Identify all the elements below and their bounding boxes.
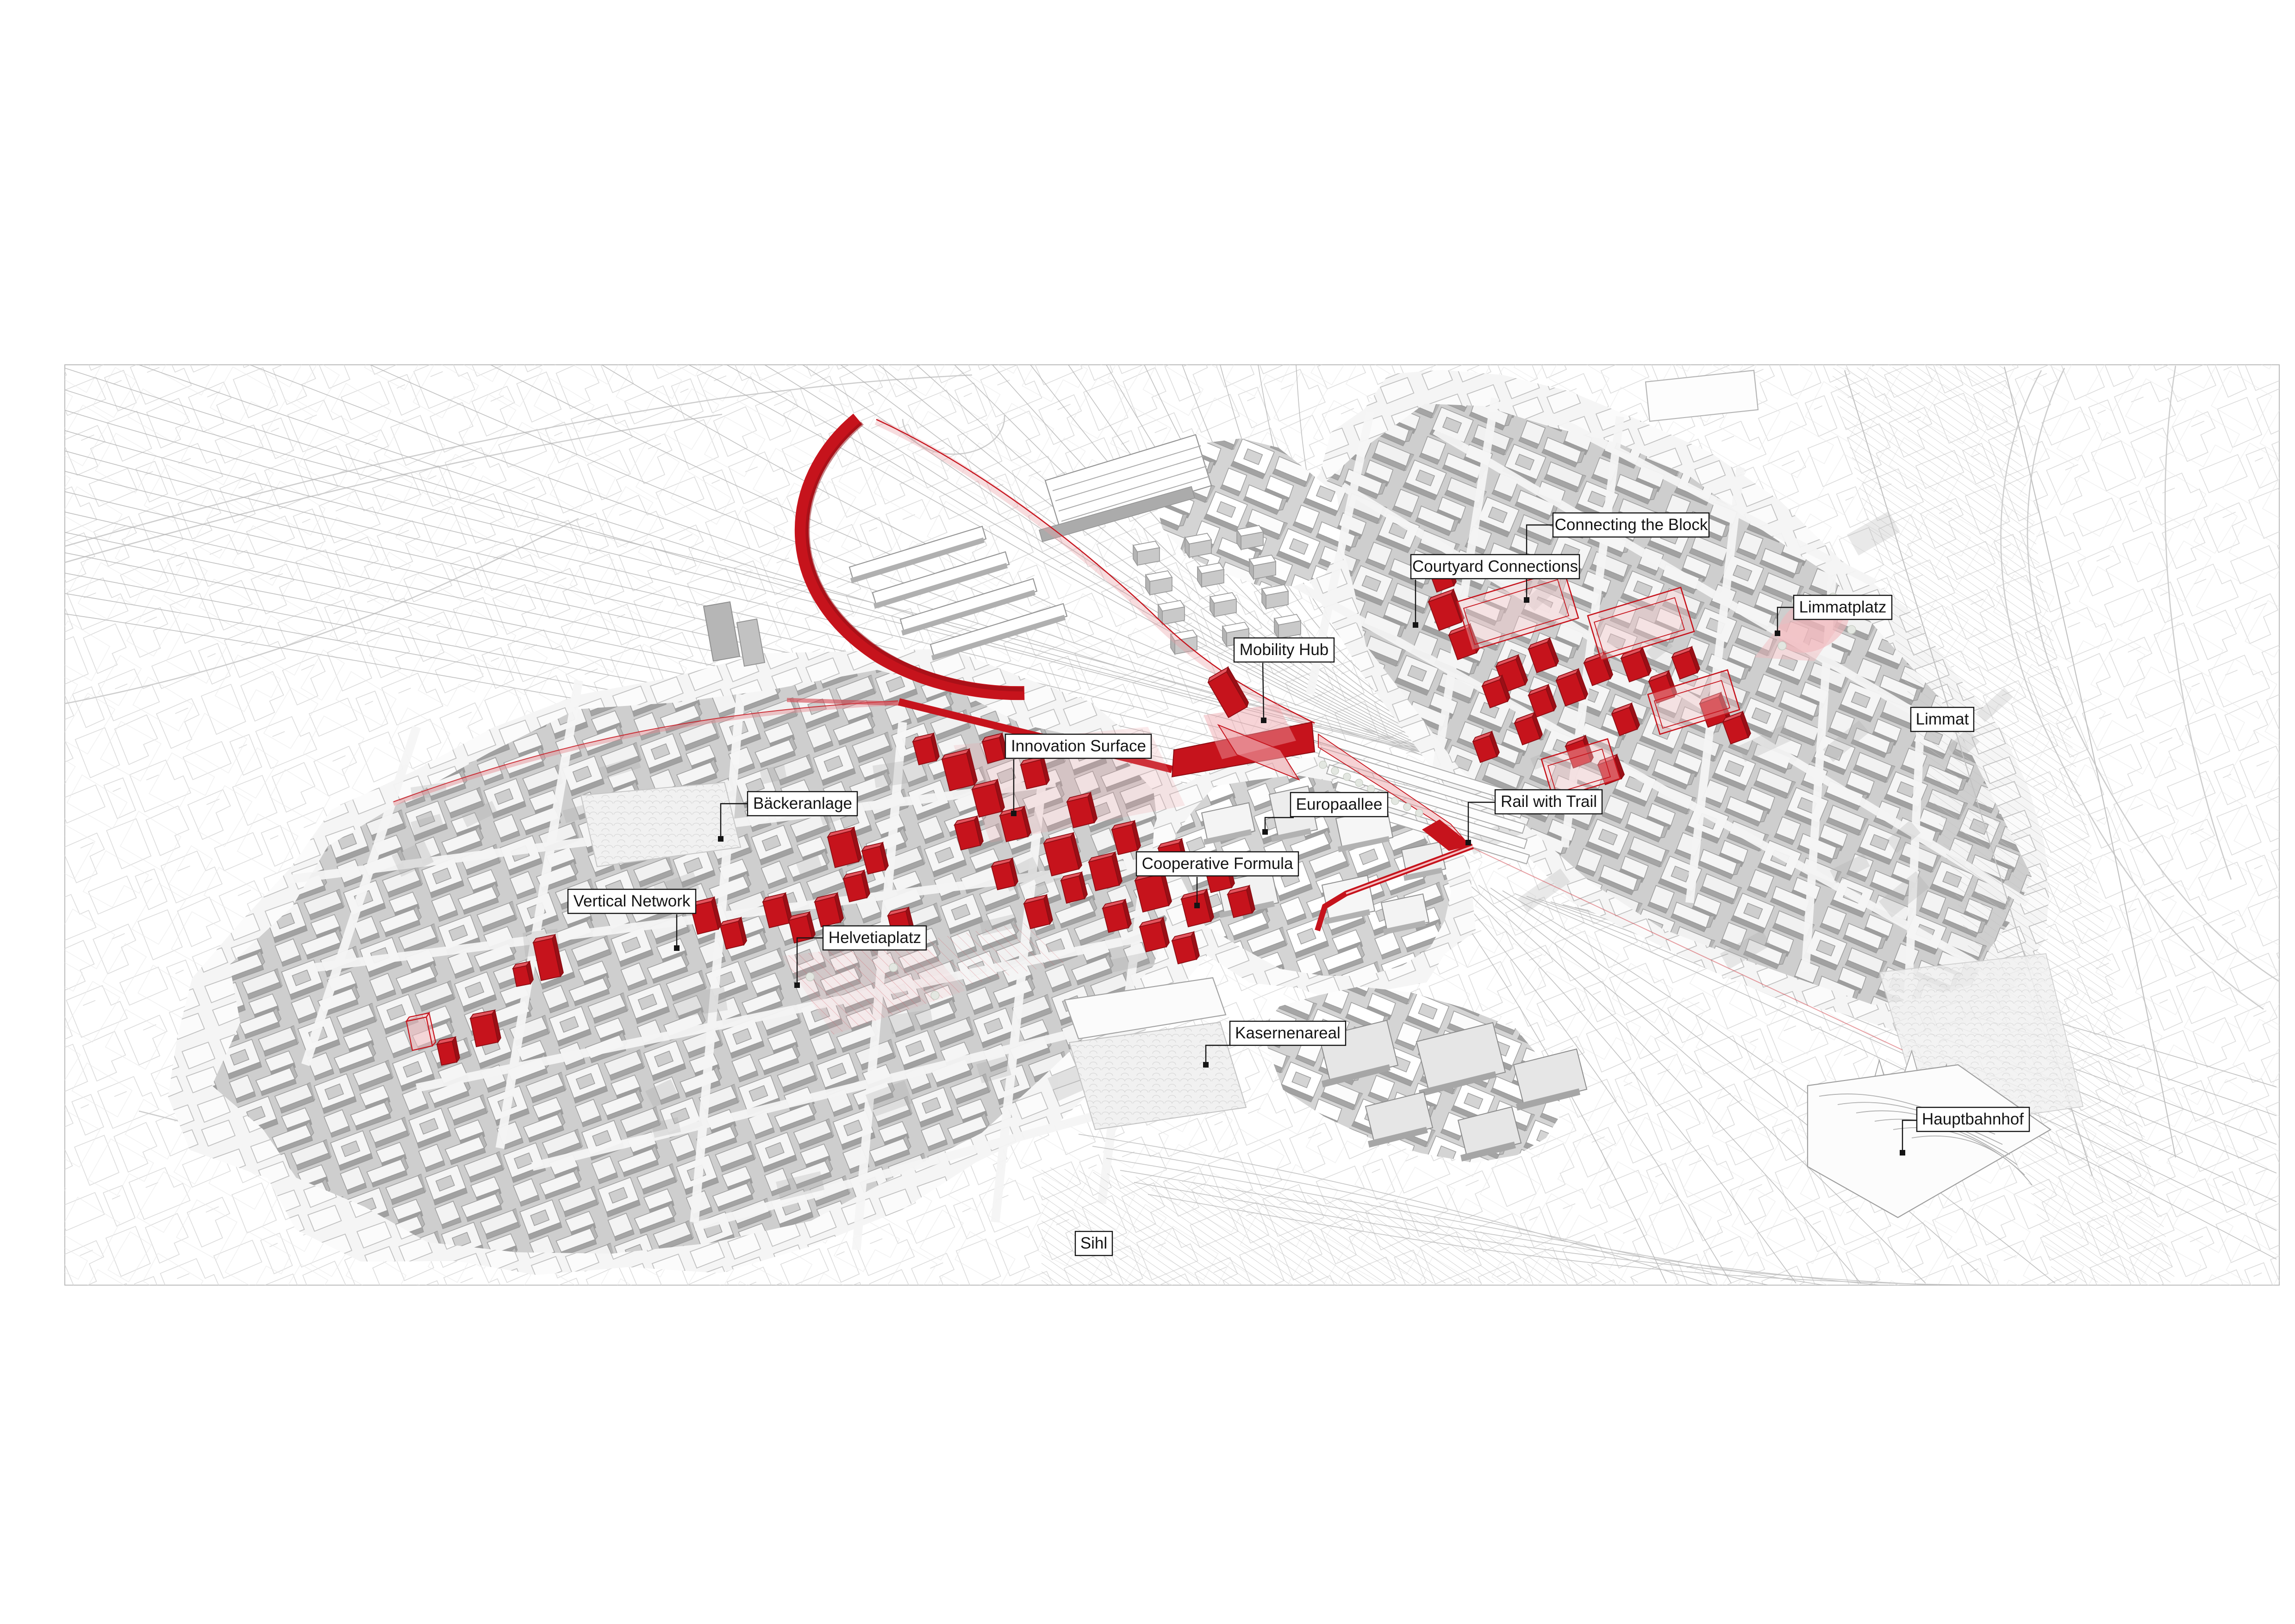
svg-text:Bäckeranlage: Bäckeranlage — [753, 794, 852, 812]
svg-text:Limmat: Limmat — [1916, 710, 1969, 728]
svg-text:Sihl: Sihl — [1080, 1234, 1107, 1252]
svg-text:Vertical Network: Vertical Network — [574, 892, 691, 910]
svg-text:Innovation Surface: Innovation Surface — [1011, 737, 1146, 755]
svg-text:Hauptbahnhof: Hauptbahnhof — [1922, 1110, 2024, 1128]
svg-text:Mobility Hub: Mobility Hub — [1240, 641, 1329, 659]
svg-text:Cooperative Formula: Cooperative Formula — [1142, 855, 1293, 873]
svg-text:Helvetiaplatz: Helvetiaplatz — [829, 929, 921, 947]
svg-text:Connecting the Block: Connecting the Block — [1555, 516, 1708, 534]
svg-text:Rail with Trail: Rail with Trail — [1501, 793, 1597, 811]
svg-text:Courtyard Connections: Courtyard Connections — [1412, 557, 1578, 575]
svg-text:Europaallee: Europaallee — [1296, 795, 1383, 813]
svg-text:Limmatplatz: Limmatplatz — [1799, 598, 1887, 616]
svg-text:Kasernenareal: Kasernenareal — [1235, 1024, 1341, 1042]
